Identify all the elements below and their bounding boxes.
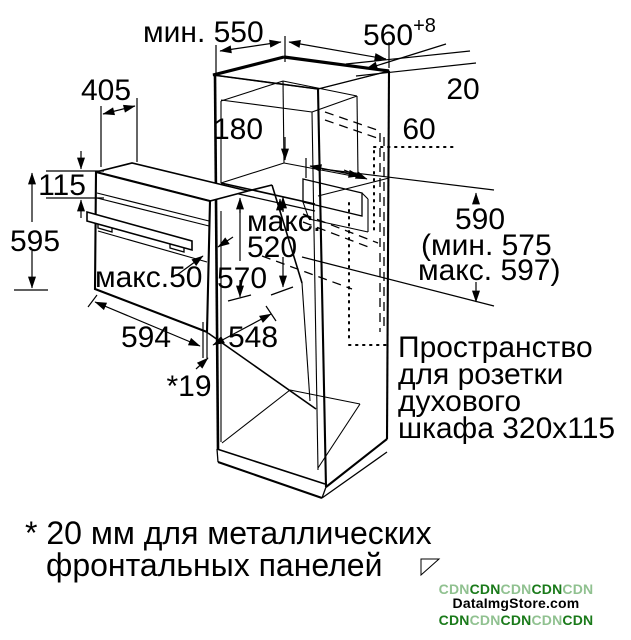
dim-max-50-label: макс.50 — [95, 261, 202, 294]
dim-19-label: *19 — [166, 370, 211, 403]
oven-front-face — [95, 172, 210, 332]
dim-115-label: 115 — [38, 169, 86, 202]
watermark-cdn: CDN — [470, 612, 501, 628]
dim-180-label: 180 — [213, 113, 263, 146]
dim-548-label: 548 — [228, 321, 278, 354]
footnote-line2: фронтальных панелей — [46, 547, 382, 583]
footnote: * 20 мм для металлических фронтальных па… — [25, 515, 432, 583]
cabinet-side-wall — [318, 71, 389, 487]
dim-20-label: 20 — [446, 73, 479, 106]
watermark-cdn: CDN — [439, 612, 470, 628]
dim-min-550-label: мин. 550 — [143, 16, 264, 49]
dim-560-value: 560 — [363, 19, 413, 52]
watermark-cdn: CDN — [562, 612, 593, 628]
dim-405-label: 405 — [81, 74, 131, 107]
socket-note: Пространство для розетки духового шкафа … — [398, 331, 615, 445]
watermark-site: DataImgStore.com — [453, 595, 580, 611]
dim-594-label: 594 — [121, 321, 171, 354]
footnote-line1: * 20 мм для металлических — [25, 515, 432, 551]
dim-max-520-value: 520 — [247, 231, 297, 264]
dim-560-tolerance: +8 — [413, 15, 436, 37]
dim-590-max-label: макс. 597) — [418, 254, 561, 287]
watermark-line3: CDNCDNCDNCDNCDN — [439, 612, 594, 628]
watermark-cdn: CDN — [501, 612, 532, 628]
dim-560-label: 560+8 — [363, 15, 436, 52]
socket-note-line4: шкафа 320x115 — [398, 412, 615, 445]
oven-installation-diagram: мин. 550 560+8 20 405 180 60 115 595 мак… — [0, 0, 631, 640]
corner-mark — [421, 559, 439, 575]
installation-diagram-page: мин. 550 560+8 20 405 180 60 115 595 мак… — [0, 0, 631, 640]
dim-60-label: 60 — [402, 113, 435, 146]
dim-595-label: 595 — [10, 225, 60, 258]
watermark-cdn: CDN — [531, 612, 562, 628]
watermark: CDNCDNCDNCDNCDN DataImgStore.com CDNCDNC… — [439, 581, 594, 628]
dim-570-label: 570 — [217, 262, 267, 295]
